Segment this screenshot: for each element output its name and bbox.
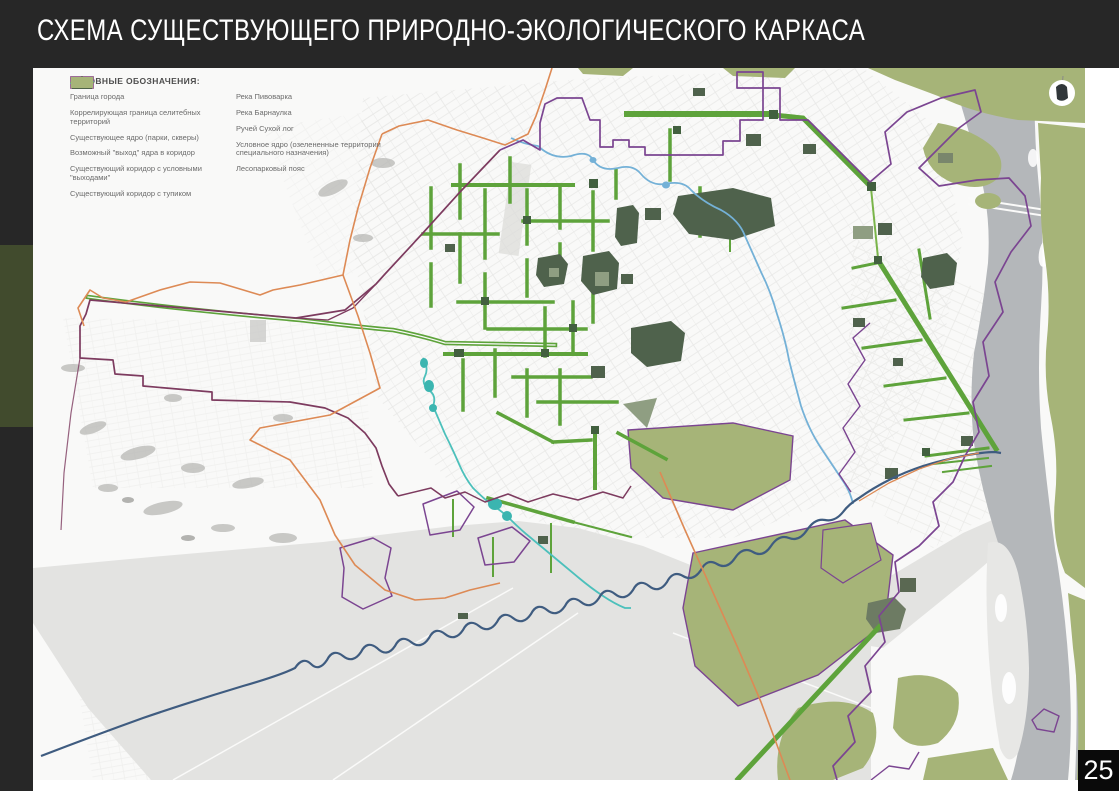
legend-item-label: Граница города	[70, 92, 124, 102]
map-canvas: УСЛОВНЫЕ ОБОЗНАЧЕНИЯ: Граница города Кор…	[33, 68, 1085, 780]
legend-item-label: Существующее ядро (парки, скверы)	[70, 133, 199, 143]
legend-item-label: Лесопарковый пояс	[236, 164, 305, 174]
legend-item-city-boundary: Граница города	[70, 92, 222, 102]
legend-item-residential-boundary: Коррелирующая граница селитебных террито…	[70, 108, 222, 127]
legend-item-label: Река Барнаулка	[236, 108, 292, 118]
legend-left-column: Граница города Коррелирующая граница сел…	[70, 92, 222, 199]
sidebar-accent-block	[0, 245, 33, 427]
left-sidebar	[0, 68, 33, 791]
legend-item-existing-core: Существующее ядро (парки, скверы)	[70, 133, 222, 143]
legend-item-label: Условное ядро (озелененные территории сп…	[236, 140, 386, 159]
legend-item-river-barnaulka: Река Барнаулка	[236, 108, 386, 118]
legend-item-label: Река Пивоварка	[236, 92, 292, 102]
legend-item-label: Существующий коридор с тупиком	[70, 189, 191, 199]
legend-item-creek-sukhoy-log: Ручей Сухой лог	[236, 124, 386, 134]
slide-header: СХЕМА СУЩЕСТВУЮЩЕГО ПРИРОДНО-ЭКОЛОГИЧЕСК…	[0, 0, 1119, 68]
legend-item-corridor-dead-end: Существующий коридор с тупиком	[70, 189, 222, 199]
page-number: 25	[1083, 755, 1113, 786]
page-number-badge: 25	[1078, 750, 1119, 791]
legend-item-conditional-core: Условное ядро (озелененные территории сп…	[236, 140, 386, 159]
legend-item-label: Ручей Сухой лог	[236, 124, 294, 134]
legend-right-column: Река Пивоварка Река Барнаулка Ручей Сухо…	[236, 92, 386, 199]
legend-item-forest-park-belt: Лесопарковый пояс	[236, 164, 386, 174]
legend-item-corridor-exits: Существующий коридор с условными "выхода…	[70, 164, 222, 183]
forest-belt-swatch-icon	[70, 76, 94, 89]
legend-item-core-exit: Возможный "выход" ядра в коридор	[70, 148, 222, 158]
legend-item-label: Существующий коридор с условными "выхода…	[70, 164, 222, 183]
page-title: СХЕМА СУЩЕСТВУЮЩЕГО ПРИРОДНО-ЭКОЛОГИЧЕСК…	[37, 14, 865, 48]
legend-title: УСЛОВНЫЕ ОБОЗНАЧЕНИЯ:	[70, 76, 400, 86]
legend-item-river-pivovarka: Река Пивоварка	[236, 92, 386, 102]
legend-item-label: Коррелирующая граница селитебных террито…	[70, 108, 222, 127]
legend: УСЛОВНЫЕ ОБОЗНАЧЕНИЯ: Граница города Кор…	[70, 76, 400, 199]
legend-item-label: Возможный "выход" ядра в коридор	[70, 148, 195, 158]
